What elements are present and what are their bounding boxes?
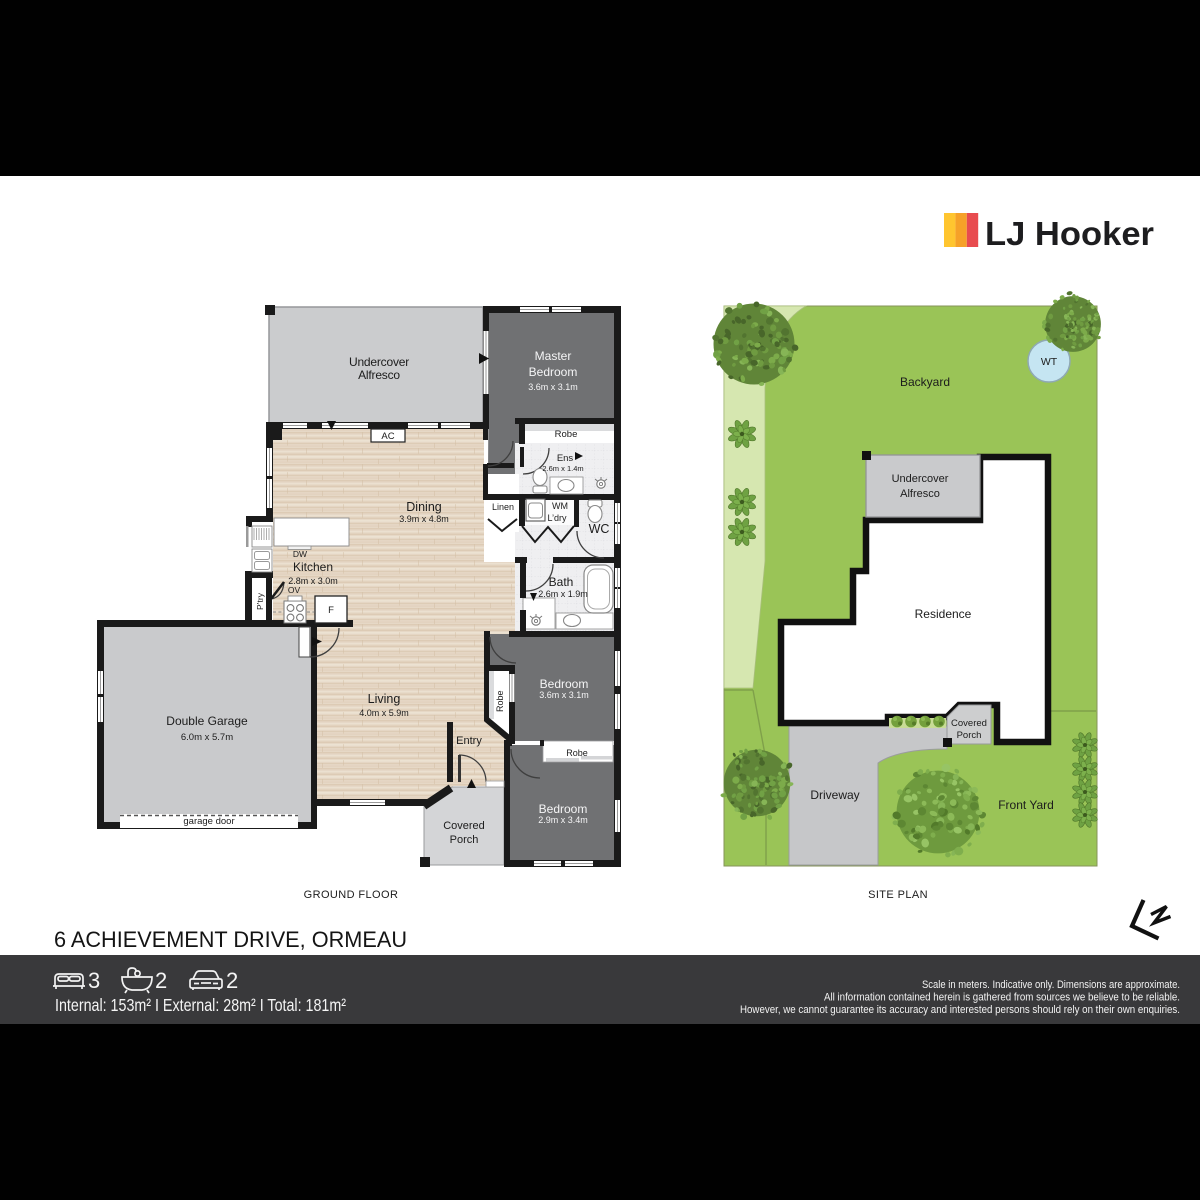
svg-text:However, we cannot guarantee i: However, we cannot guarantee its accurac… [740, 1004, 1180, 1016]
svg-text:Bedroom: Bedroom [540, 677, 589, 691]
svg-text:2: 2 [226, 968, 238, 993]
svg-text:Front Yard: Front Yard [998, 798, 1054, 812]
svg-text:Covered: Covered [951, 718, 987, 729]
svg-text:2: 2 [155, 968, 167, 993]
svg-text:Linen: Linen [492, 502, 514, 512]
svg-text:Driveway: Driveway [810, 788, 859, 802]
svg-text:P’try: P’try [255, 592, 265, 610]
svg-text:Living: Living [368, 692, 401, 706]
svg-text:6.0m x 5.7m: 6.0m x 5.7m [181, 732, 233, 743]
svg-text:2.6m x 1.4m: 2.6m x 1.4m [542, 464, 583, 473]
svg-text:2.9m x 3.4m: 2.9m x 3.4m [538, 815, 588, 825]
svg-text:WM: WM [552, 501, 568, 511]
svg-text:AC: AC [381, 431, 394, 442]
svg-text:Dining: Dining [406, 500, 441, 514]
svg-text:3: 3 [88, 968, 100, 993]
svg-text:6 ACHIEVEMENT DRIVE, ORMEAU: 6 ACHIEVEMENT DRIVE, ORMEAU [54, 927, 407, 952]
svg-text:Bath: Bath [549, 575, 574, 589]
svg-text:L’dry: L’dry [547, 513, 567, 523]
svg-text:OV: OV [288, 585, 301, 595]
svg-text:Internal: 153m² I External: 28: Internal: 153m² I External: 28m² I Total… [55, 995, 346, 1015]
svg-text:All information contained here: All information contained herein is gath… [824, 992, 1180, 1004]
svg-text:GROUND FLOOR: GROUND FLOOR [304, 889, 399, 901]
svg-text:3.9m x 4.8m: 3.9m x 4.8m [399, 514, 449, 524]
svg-text:2.6m x 1.9m: 2.6m x 1.9m [538, 589, 588, 599]
svg-text:Undercover: Undercover [892, 473, 949, 485]
svg-text:garage door: garage door [183, 816, 234, 827]
svg-text:DW: DW [293, 549, 307, 559]
svg-text:Scale in meters. Indicative on: Scale in meters. Indicative only. Dimens… [922, 979, 1180, 991]
svg-text:WT: WT [1041, 356, 1058, 368]
svg-text:Alfresco: Alfresco [900, 488, 940, 500]
svg-text:WC: WC [589, 522, 610, 536]
svg-text:SITE PLAN: SITE PLAN [868, 889, 928, 901]
svg-text:Robe: Robe [555, 429, 578, 440]
svg-text:LJ Hooker: LJ Hooker [985, 215, 1154, 252]
svg-text:Master: Master [535, 349, 572, 363]
svg-text:Entry: Entry [456, 735, 482, 747]
svg-text:Bedroom: Bedroom [529, 365, 578, 379]
svg-text:3.6m x 3.1m: 3.6m x 3.1m [539, 690, 589, 700]
svg-text:Undercover: Undercover [349, 355, 409, 369]
svg-text:Porch: Porch [957, 730, 982, 741]
svg-text:Double Garage: Double Garage [166, 714, 248, 728]
svg-text:3.6m x 3.1m: 3.6m x 3.1m [528, 382, 578, 392]
svg-text:F: F [328, 605, 334, 616]
svg-text:Residence: Residence [915, 607, 972, 621]
svg-text:Backyard: Backyard [900, 375, 950, 389]
svg-text:Kitchen: Kitchen [293, 560, 333, 574]
svg-text:Ens: Ens [557, 453, 574, 464]
svg-text:Bedroom: Bedroom [539, 802, 588, 816]
svg-text:Robe: Robe [566, 748, 588, 758]
svg-text:4.0m x 5.9m: 4.0m x 5.9m [359, 708, 409, 718]
svg-text:Covered: Covered [443, 820, 485, 832]
svg-text:Robe: Robe [495, 690, 505, 712]
svg-text:Alfresco: Alfresco [358, 368, 400, 382]
svg-text:Porch: Porch [450, 834, 479, 846]
